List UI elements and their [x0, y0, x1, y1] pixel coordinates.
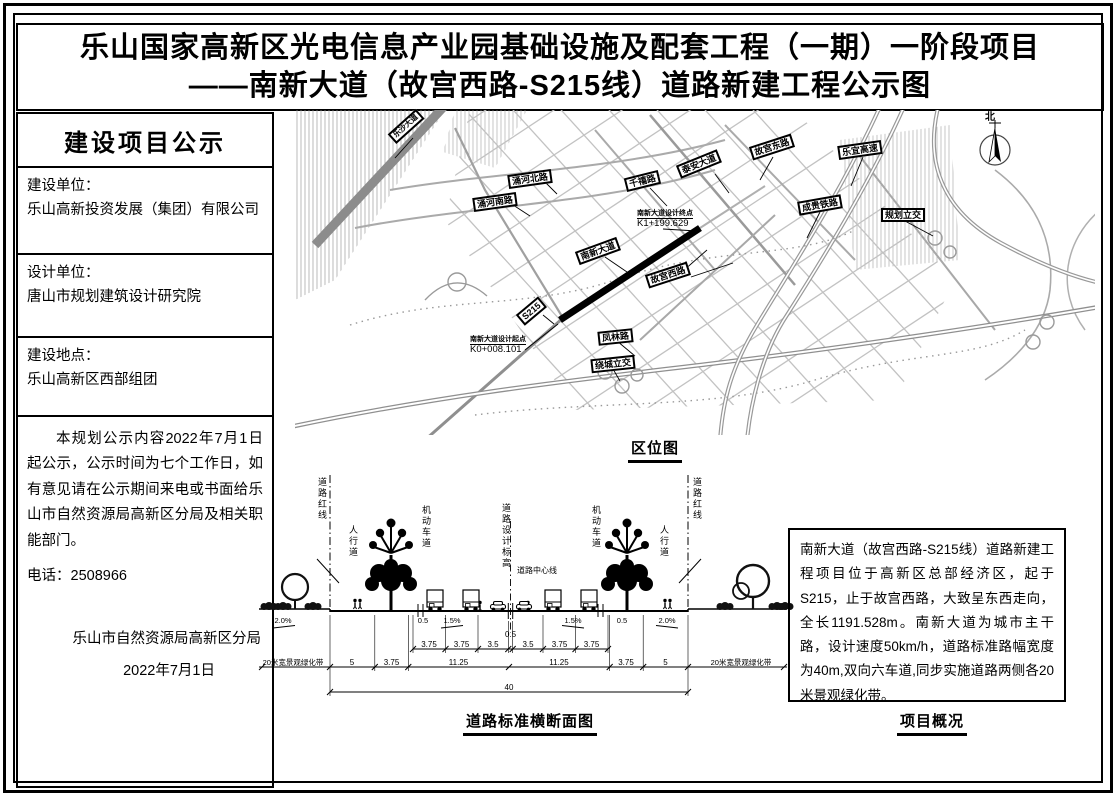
field-label: 设计单位： — [27, 262, 263, 286]
field-value: 唐山市规划建筑设计研究院 — [27, 286, 263, 310]
design-start-annotation: 南新大道设计起点 K0+008.101 — [470, 336, 526, 356]
cross-section-caption: 道路标准横断面图 — [463, 710, 597, 736]
sidewalk-label-left: 人行道 — [348, 525, 357, 558]
notice-signature: 乐山市自然资源局高新区分局 — [27, 627, 263, 652]
svg-text:3.75: 3.75 — [421, 640, 437, 649]
notice-section: 本规划公示内容2022年7月1日起公示，公示时间为七个工作日，如有意见请在公示期… — [18, 417, 272, 786]
svg-text:2.0%: 2.0% — [274, 616, 291, 625]
svg-text:0.5: 0.5 — [505, 630, 517, 639]
svg-text:1.5%: 1.5% — [564, 616, 581, 625]
svg-text:3.75: 3.75 — [384, 658, 400, 667]
svg-text:11.25: 11.25 — [449, 658, 469, 667]
center-line-label: 道路中心线 — [517, 565, 557, 576]
red-line-label-left: 道路红线 — [317, 477, 326, 521]
field-value: 乐山高新区西部组团 — [27, 369, 263, 393]
location-map: 乐沙大道 涌河北路 涌河南路 千禧路 泰安大道 故宫东路 乐宜高速 成贵铁路 规… — [295, 110, 1095, 435]
red-line-label-right: 道路红线 — [692, 477, 701, 521]
svg-text:5: 5 — [350, 658, 355, 667]
title-line1: 乐山国家高新区光电信息产业园基础设施及配套工程（一期）一阶段项目 — [80, 29, 1040, 67]
notice-paragraph: 本规划公示内容2022年7月1日起公示，公示时间为七个工作日，如有意见请在公示期… — [27, 427, 263, 554]
svg-text:3.75: 3.75 — [552, 640, 568, 649]
project-overview-box: 南新大道（故宫西路-S215线）道路新建工程项目位于高新区总部经济区，起于S21… — [788, 528, 1066, 702]
svg-text:11.25: 11.25 — [549, 658, 569, 667]
north-label: 北 — [985, 108, 995, 123]
design-elevation-label: 道路设计标高 — [501, 503, 510, 569]
motor-lane-label-right: 机动车道 — [591, 505, 600, 549]
svg-text:5: 5 — [663, 658, 668, 667]
design-end-annotation: 南新大道设计终点 K1+199.629 — [637, 210, 693, 230]
project-overview-text: 南新大道（故宫西路-S215线）道路新建工程项目位于高新区总部经济区，起于S21… — [800, 542, 1054, 703]
svg-text:40: 40 — [505, 683, 514, 692]
field-label: 建设单位： — [27, 175, 263, 199]
svg-text:0.5: 0.5 — [617, 616, 627, 625]
green-belt-label-right: 20米宽景观绿化带 — [711, 657, 772, 667]
field-value: 乐山高新投资发展（集团）有限公司 — [27, 199, 263, 223]
field-design-unit: 设计单位： 唐山市规划建筑设计研究院 — [18, 255, 272, 338]
dimension-lines — [259, 615, 787, 696]
sidewalk-label-right: 人行道 — [659, 525, 668, 558]
project-info-panel: 建设项目公示 建设单位： 乐山高新投资发展（集团）有限公司 设计单位： 唐山市规… — [16, 112, 274, 788]
road-label-guihualijiao: 规划立交 — [881, 208, 925, 222]
design-start-chainage: K0+008.101 — [470, 345, 526, 356]
svg-text:3.75: 3.75 — [454, 640, 470, 649]
notice-phone: 电话：2508966 — [27, 564, 263, 589]
svg-text:3.75: 3.75 — [618, 658, 634, 667]
cross-section-drawing: 2.0% 0.5 1.5% 1.5% 0.5 2.0% — [255, 463, 795, 705]
field-label: 建设地点： — [27, 345, 263, 369]
svg-text:1.5%: 1.5% — [443, 616, 460, 625]
design-end-chainage: K1+199.629 — [637, 219, 693, 230]
vehicles — [427, 590, 597, 611]
public-notice-sheet: 乐山国家高新区光电信息产业园基础设施及配套工程（一期）一阶段项目 ——南新大道（… — [0, 0, 1116, 796]
svg-text:0.5: 0.5 — [418, 616, 428, 625]
notice-date: 2022年7月1日 — [27, 659, 263, 684]
svg-text:3.5: 3.5 — [487, 640, 499, 649]
slope-annotations: 2.0% 0.5 1.5% 1.5% 0.5 2.0% — [273, 616, 678, 628]
svg-text:2.0%: 2.0% — [658, 616, 675, 625]
field-construction-unit: 建设单位： 乐山高新投资发展（集团）有限公司 — [18, 168, 272, 255]
green-belt-label-left: 20米宽景观绿化带 — [263, 657, 324, 667]
map-caption: 区位图 — [628, 437, 682, 463]
panel-title: 建设项目公示 — [18, 114, 272, 168]
svg-text:3.5: 3.5 — [522, 640, 534, 649]
title-line2: ——南新大道（故宫西路-S215线）道路新建工程公示图 — [189, 67, 931, 105]
title-block: 乐山国家高新区光电信息产业园基础设施及配套工程（一期）一阶段项目 ——南新大道（… — [16, 23, 1104, 111]
overview-caption: 项目概况 — [897, 710, 967, 736]
north-arrow-icon — [980, 120, 1010, 165]
motor-lane-label-left: 机动车道 — [421, 505, 430, 549]
field-location: 建设地点： 乐山高新区西部组团 — [18, 338, 272, 417]
dimension-values: 0.5 3.75 3.75 3.5 3.5 3.75 3.75 5 3.75 1… — [263, 630, 772, 692]
cross-section: 2.0% 0.5 1.5% 1.5% 0.5 2.0% — [255, 463, 795, 705]
svg-text:3.75: 3.75 — [584, 640, 600, 649]
